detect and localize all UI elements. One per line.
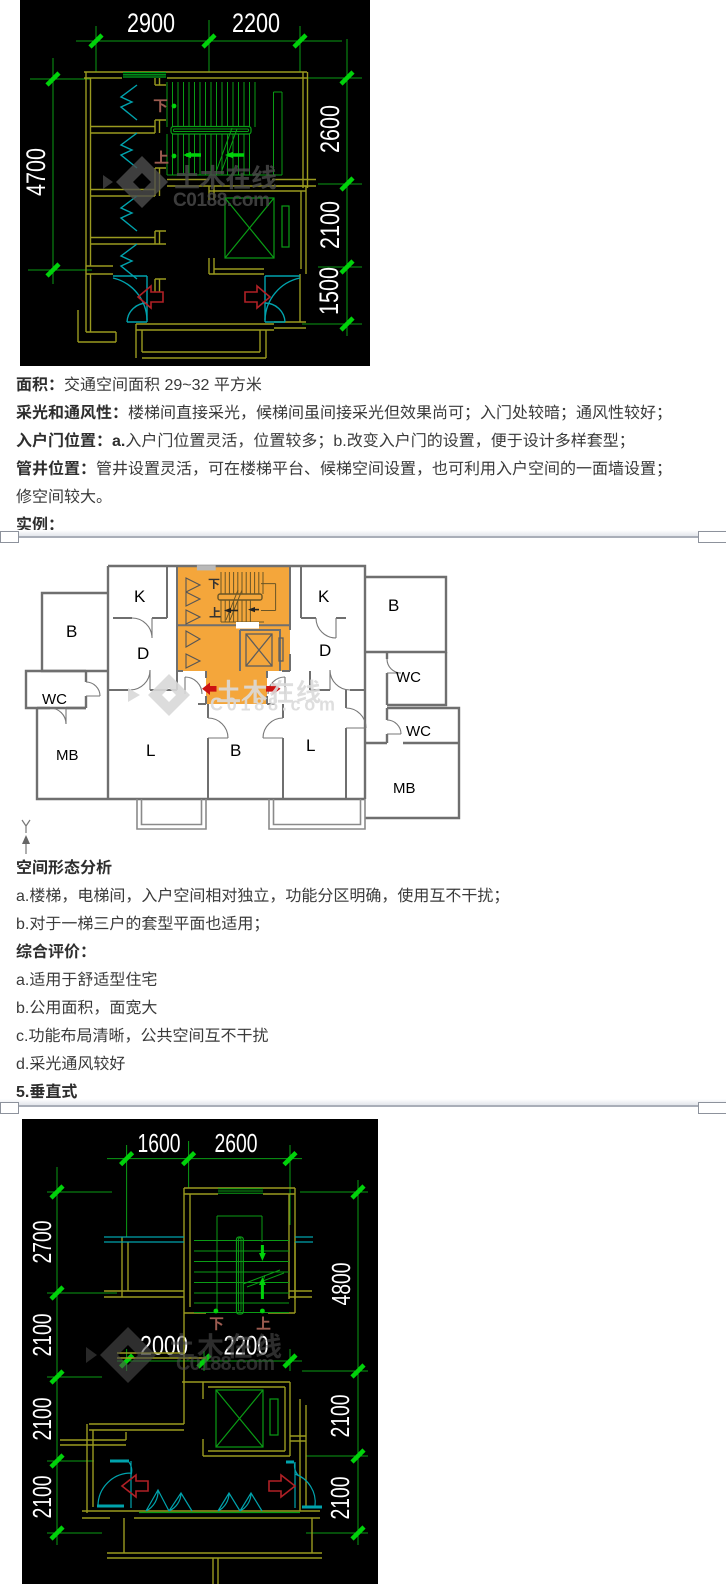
svg-text:2100: 2100 (27, 1398, 57, 1441)
svg-text:下: 下 (208, 575, 220, 592)
svg-text:1500: 1500 (314, 267, 344, 315)
svg-text:D: D (319, 641, 331, 660)
svg-text:K: K (134, 587, 146, 606)
svg-text:B: B (230, 741, 241, 760)
svg-text:C0188.com: C0188.com (176, 1353, 275, 1375)
svg-text:WC: WC (406, 723, 431, 740)
svg-text:1600: 1600 (138, 1128, 181, 1158)
svg-text:4700: 4700 (21, 148, 51, 196)
svg-text:B: B (66, 622, 77, 641)
svg-text:下: 下 (153, 95, 168, 116)
svg-text:2600: 2600 (315, 105, 345, 153)
svg-text:上: 上 (154, 147, 169, 168)
svg-text:D: D (137, 644, 149, 663)
svg-text:2100: 2100 (325, 1395, 355, 1438)
svg-text:WC: WC (42, 691, 67, 708)
svg-text:2600: 2600 (215, 1128, 258, 1158)
svg-text:2100: 2100 (27, 1314, 57, 1357)
svg-text:2900: 2900 (127, 8, 175, 38)
svg-text:2200: 2200 (232, 8, 280, 38)
svg-text:MB: MB (393, 780, 416, 797)
svg-text:上: 上 (209, 604, 221, 621)
svg-text:L: L (306, 736, 315, 755)
svg-text:WC: WC (396, 669, 421, 686)
svg-text:B: B (388, 596, 399, 615)
svg-text:2100: 2100 (27, 1476, 57, 1519)
svg-text:2700: 2700 (27, 1221, 57, 1264)
svg-text:L: L (146, 741, 155, 760)
svg-text:2100: 2100 (315, 201, 345, 249)
svg-text:C0188.com: C0188.com (173, 190, 270, 211)
svg-text:K: K (318, 587, 330, 606)
svg-text:MB: MB (56, 747, 79, 764)
svg-text:2100: 2100 (325, 1477, 355, 1520)
svg-text:4800: 4800 (326, 1263, 356, 1306)
